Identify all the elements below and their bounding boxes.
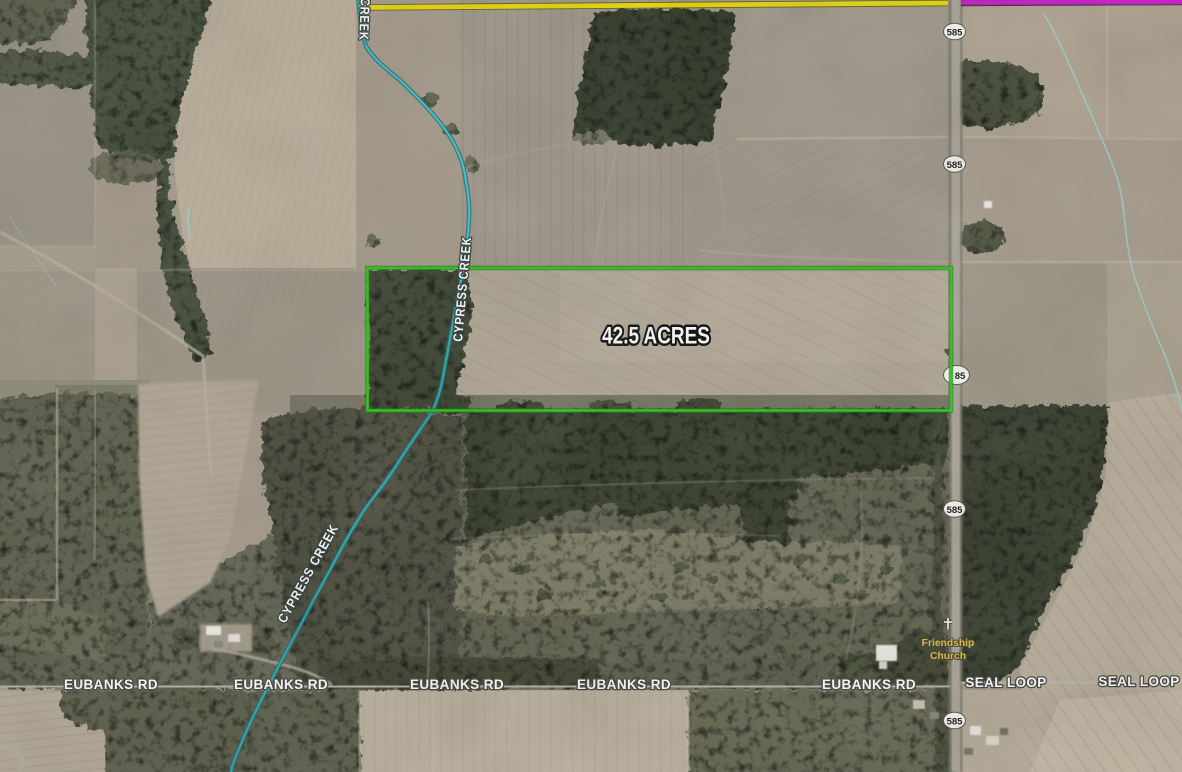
svg-text:EUBANKS RD: EUBANKS RD <box>577 677 671 692</box>
svg-text:EUBANKS RD: EUBANKS RD <box>234 677 328 692</box>
svg-text:EUBANKS RD: EUBANKS RD <box>410 677 504 692</box>
svg-text:CYPRESS CREEK: CYPRESS CREEK <box>356 0 375 41</box>
svg-text:42.5 ACRES: 42.5 ACRES <box>602 321 710 349</box>
svg-text:Church: Church <box>930 651 966 662</box>
svg-text:85: 85 <box>955 371 966 382</box>
svg-text:Friendship: Friendship <box>922 638 975 649</box>
svg-text:SEAL LOOP: SEAL LOOP <box>1098 674 1179 689</box>
svg-text:585: 585 <box>947 160 964 171</box>
svg-text:585: 585 <box>947 717 964 728</box>
svg-text:SEAL LOOP: SEAL LOOP <box>965 675 1046 690</box>
svg-text:585: 585 <box>947 28 964 39</box>
svg-text:EUBANKS RD: EUBANKS RD <box>822 677 916 692</box>
svg-text:585: 585 <box>947 505 964 516</box>
svg-text:EUBANKS RD: EUBANKS RD <box>64 677 158 692</box>
